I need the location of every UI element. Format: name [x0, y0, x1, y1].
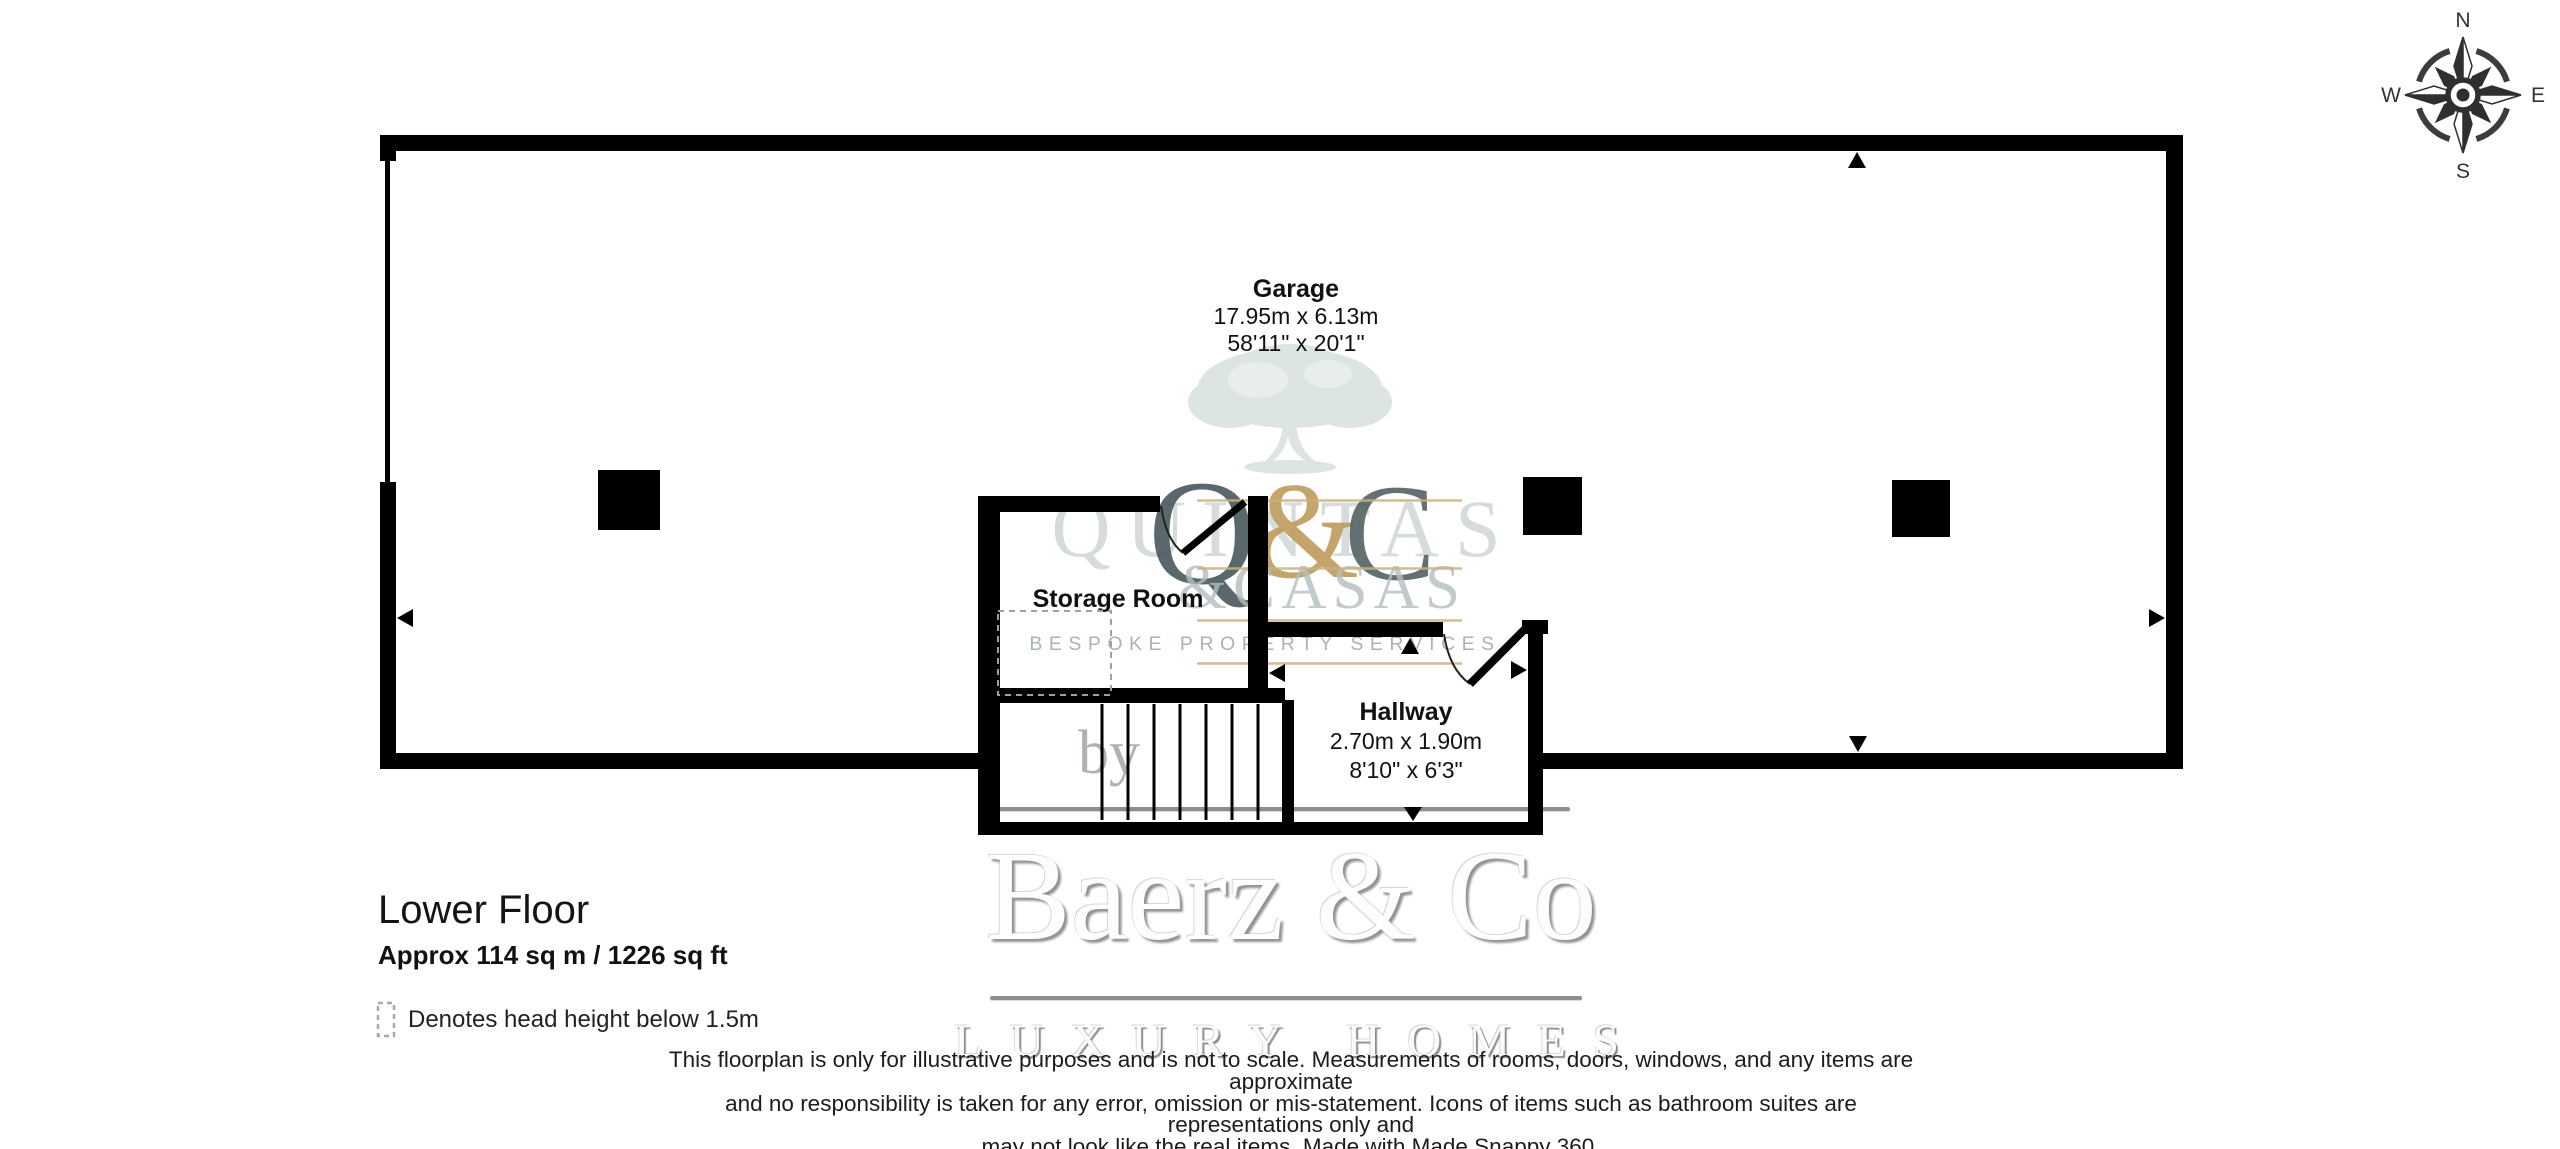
pillars	[598, 470, 1950, 537]
disclaimer-line-2: and no responsibility is taken for any e…	[661, 1093, 1921, 1137]
hallway-arrow-south-icon	[1404, 807, 1422, 821]
staircase	[1102, 704, 1258, 820]
arrow-south-icon	[1849, 736, 1867, 752]
head-height-legend-swatch	[378, 1003, 394, 1036]
arrow-north-icon	[1848, 152, 1866, 168]
hallway-arrow-east-icon	[1511, 661, 1527, 679]
inner-block-walls	[978, 496, 1548, 835]
disclaimer: This floorplan is only for illustrative …	[661, 1049, 1921, 1149]
floorplan-page: QUINTAS Q & C &CASAS BESPOKE PROPERTY SE…	[0, 0, 2560, 1149]
disclaimer-line-1: This floorplan is only for illustrative …	[661, 1049, 1921, 1093]
disclaimer-line-3: may not look like the real items. Made w…	[661, 1136, 1921, 1149]
pillar-1	[598, 470, 660, 530]
floorplan-drawing	[0, 0, 2560, 1149]
arrow-east-icon	[2149, 609, 2165, 627]
hallway-arrow-north-icon	[1401, 638, 1419, 654]
head-height-zone	[998, 611, 1111, 695]
storage-door	[1161, 502, 1245, 553]
pillar-2	[1523, 477, 1582, 535]
hallway-arrow-west-icon	[1269, 664, 1285, 682]
pillar-3	[1892, 480, 1950, 537]
garage-door-line	[385, 161, 390, 482]
arrow-west-icon	[397, 609, 413, 627]
